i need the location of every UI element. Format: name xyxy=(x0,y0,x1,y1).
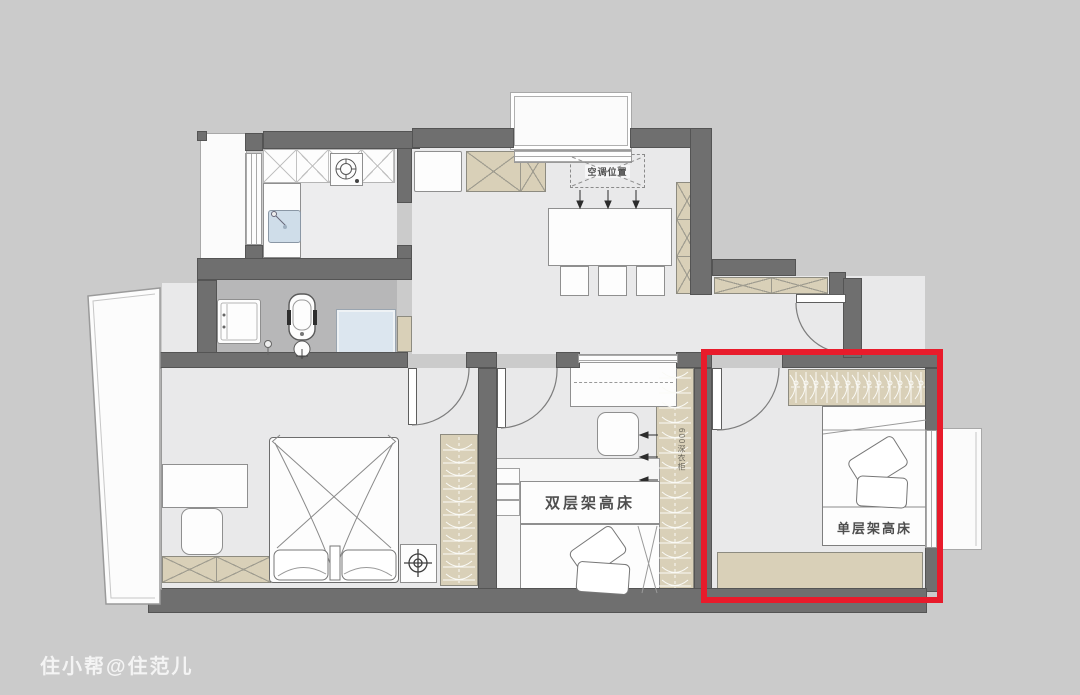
master-wardrobe xyxy=(440,434,478,586)
kids-loft-bed xyxy=(520,524,660,595)
north-balcony-floor xyxy=(200,133,247,262)
master-desk xyxy=(162,464,248,508)
wall-block xyxy=(245,133,263,151)
cabinet-cell xyxy=(297,150,330,182)
wall-entry-top xyxy=(712,259,796,276)
wall-kitchen-bathroom xyxy=(197,258,412,280)
east-bay-window-floor xyxy=(940,428,982,550)
master-bay-window-frame xyxy=(148,368,162,590)
platform-step xyxy=(495,484,520,500)
fridge xyxy=(414,151,462,192)
double-loft-bed-label-band: 双层架高床 xyxy=(520,481,660,524)
wall-top-middle xyxy=(412,128,514,148)
ac-position-label: 空调位置 xyxy=(585,165,629,178)
cabinet-cell xyxy=(715,278,772,293)
cabinet-cell xyxy=(217,557,270,582)
kids-chair xyxy=(597,412,639,456)
kids-door-leaf xyxy=(497,368,506,428)
watermark-text: 住小帮@住范儿 xyxy=(40,650,194,679)
dining-chair xyxy=(598,266,627,296)
cabinet-cell xyxy=(362,150,395,182)
wardrobe-note-text: 600深衣柜 xyxy=(676,428,687,484)
kitchen-counter xyxy=(263,149,395,183)
kids-desk xyxy=(570,357,677,407)
wall-bathroom-left xyxy=(197,280,217,354)
highlight-rectangle xyxy=(701,349,943,603)
master-chair xyxy=(181,508,223,555)
west-bay-window-inner-line xyxy=(93,294,155,598)
master-door-leaf xyxy=(408,368,417,425)
wall-mid-c xyxy=(556,352,580,368)
kitchen-sink xyxy=(268,210,301,243)
entry-door-leaf xyxy=(796,294,846,303)
kids-room-glass-partition xyxy=(578,354,678,363)
dining-table xyxy=(548,208,672,266)
wall-corner-dot xyxy=(197,131,207,141)
floor-plan-canvas: 空调位置 双层架高床 600深衣柜 单层架高床 xyxy=(0,0,1080,695)
platform-step xyxy=(495,500,520,516)
wall-right-column xyxy=(690,128,712,295)
master-storage-bench xyxy=(162,556,271,583)
wall-kitchen-top xyxy=(263,131,420,149)
shower-area xyxy=(337,310,395,354)
cabinet-cell xyxy=(467,152,521,191)
wall-mid-a xyxy=(148,352,408,368)
master-bed xyxy=(269,437,399,583)
wall-mid-b xyxy=(466,352,497,368)
cabinet-cell xyxy=(264,150,297,182)
entry-shoe-cabinet xyxy=(714,277,828,294)
wall-master-kids-divider xyxy=(478,368,497,590)
dining-chair xyxy=(636,266,665,296)
platform-step xyxy=(495,468,520,484)
west-strip-floor xyxy=(162,283,197,354)
wall-kitchen-right-upper xyxy=(397,148,412,203)
wall-entry-right xyxy=(843,278,862,358)
north-bay-window xyxy=(510,92,632,150)
double-loft-bed-label: 双层架高床 xyxy=(545,492,635,513)
washing-machine xyxy=(217,299,261,344)
dining-chair xyxy=(560,266,589,296)
desk-centerline xyxy=(574,382,673,383)
cabinet-cell xyxy=(163,557,217,582)
bathroom-cabinet xyxy=(397,316,412,352)
cabinet-cell xyxy=(772,278,828,293)
master-nightstand xyxy=(400,544,437,583)
stove xyxy=(330,153,363,186)
dining-window xyxy=(514,150,632,163)
kitchen-balcony-window xyxy=(245,153,262,245)
